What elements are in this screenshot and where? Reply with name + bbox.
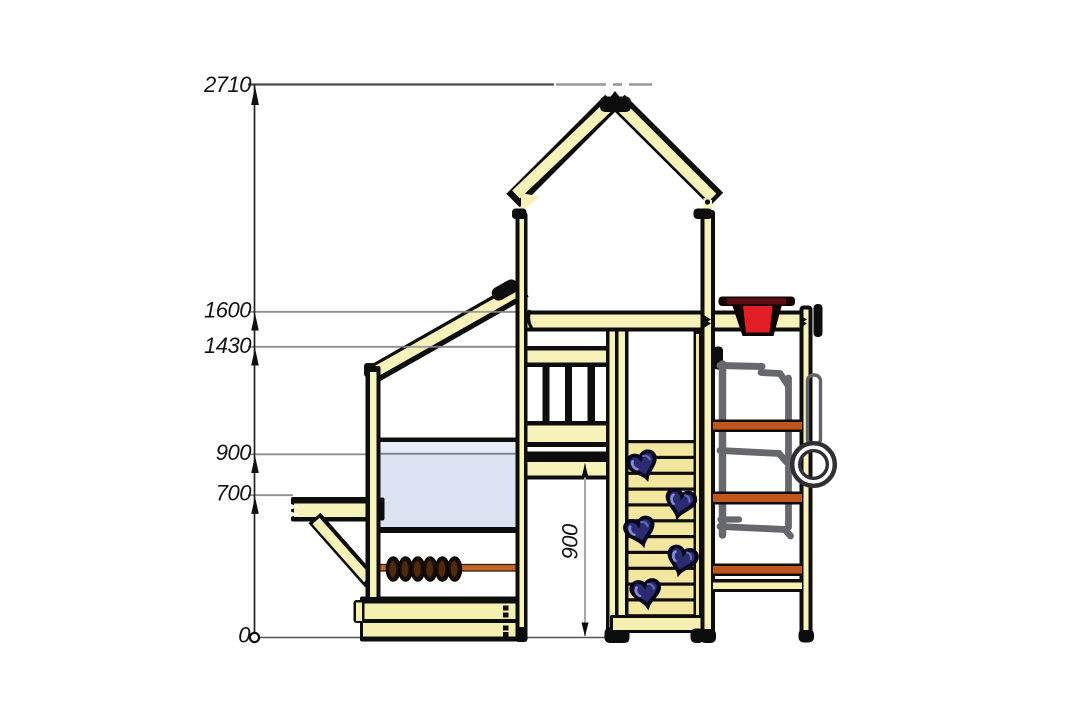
- svg-text:900: 900: [216, 440, 252, 465]
- svg-text:900: 900: [558, 523, 583, 559]
- svg-text:2710: 2710: [203, 72, 252, 97]
- svg-text:0: 0: [238, 623, 251, 648]
- svg-text:1430: 1430: [204, 333, 252, 358]
- svg-text:1600: 1600: [204, 298, 252, 323]
- svg-text:700: 700: [216, 481, 252, 506]
